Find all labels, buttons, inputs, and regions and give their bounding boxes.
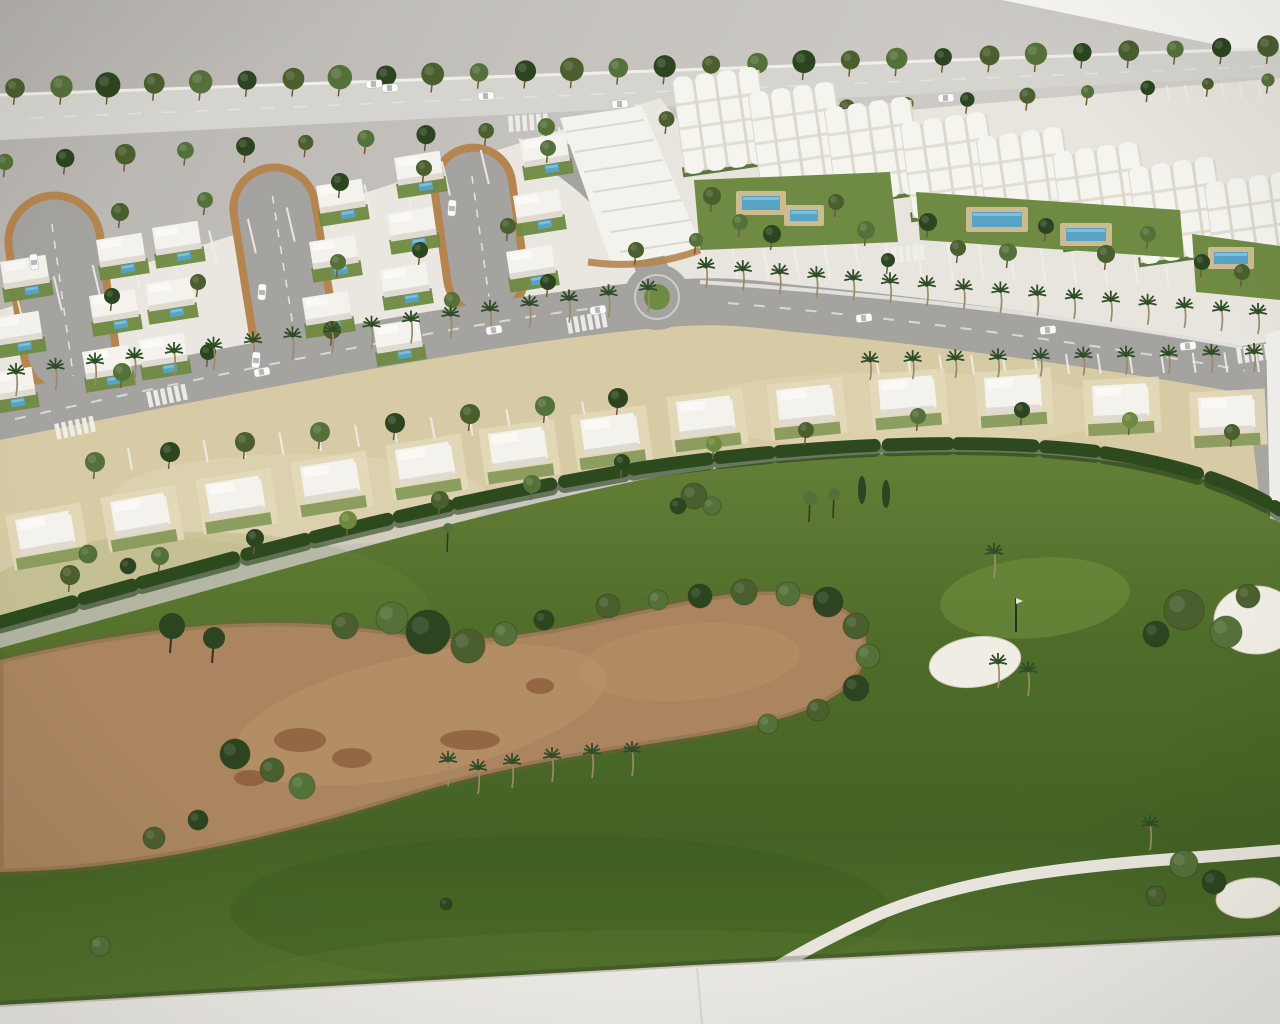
model-photo xyxy=(0,0,1280,1024)
photo-vignette xyxy=(0,0,1280,1024)
architectural-model-scene xyxy=(0,0,1280,1024)
